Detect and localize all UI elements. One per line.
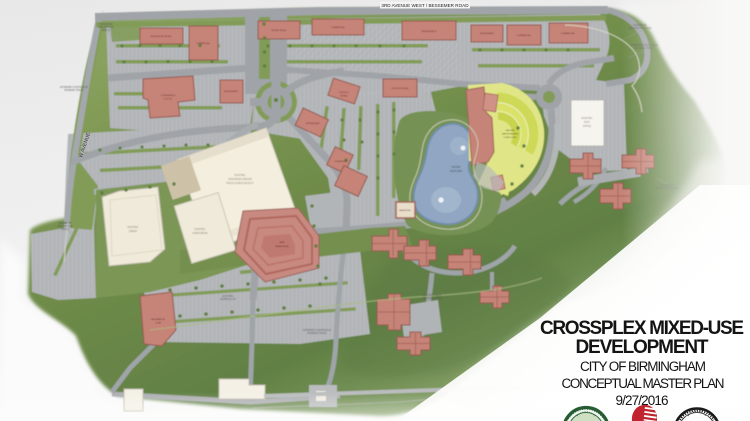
svg-text:FENCE: FENCE (61, 229, 69, 231)
svg-text:CONFERENCE: CONFERENCE (161, 95, 176, 97)
svg-text:EXTERIOR CONTINUOUS: EXTERIOR CONTINUOUS (303, 330, 331, 332)
svg-text:RETAIL: RETAIL (340, 95, 348, 98)
svg-text:ARENA: ARENA (129, 230, 137, 233)
svg-text:NATATORIUM: NATATORIUM (193, 232, 208, 235)
svg-text:WATER: WATER (451, 165, 460, 169)
svg-text:DEVELOPMENT: DEVELOPMENT (576, 337, 709, 358)
svg-text:COMMERCIAL: COMMERCIAL (196, 42, 211, 45)
svg-text:EXTERIOR CONTINUOUS: EXTERIOR CONTINUOUS (60, 87, 88, 89)
svg-text:OFFICE & RETAIL: OFFICE & RETAIL (391, 87, 409, 90)
svg-text:EXISTING: EXISTING (235, 175, 246, 177)
svg-text:EXISTING: EXISTING (128, 227, 139, 229)
svg-text:UAB MINI: UAB MINI (505, 129, 515, 132)
svg-text:RESIDENTIAL RETAIL: RESIDENTIAL RETAIL (150, 35, 172, 38)
svg-text:EXISTING: EXISTING (223, 296, 234, 298)
svg-text:PERIMETER: PERIMETER (99, 24, 113, 26)
svg-text:COMMERCIAL: COMMERCIAL (561, 32, 576, 35)
svg-text:DECORATIVE: DECORATIVE (99, 26, 114, 29)
svg-text:CROSSPLEX MIXED-USE: CROSSPLEX MIXED-USE (540, 318, 744, 339)
svg-text:TOWNHOMES: TOWNHOMES (334, 161, 349, 163)
svg-text:OFFICE &: OFFICE & (339, 92, 349, 94)
svg-text:TRACK & FIELD FACILITY: TRACK & FIELD FACILITY (226, 182, 254, 185)
svg-text:CLUB: CLUB (155, 323, 161, 325)
svg-text:WALKING TRACK: WALKING TRACK (423, 294, 442, 297)
svg-text:NEW: NEW (280, 242, 285, 244)
svg-text:OFFICE: OFFICE (583, 126, 592, 128)
svg-text:DECORATIVE: DECORATIVE (58, 225, 73, 228)
svg-text:AMENITIES: AMENITIES (399, 209, 411, 212)
svg-text:SURFACE LOT: SURFACE LOT (220, 298, 237, 301)
svg-text:CITY OF BIRMINGHAM: CITY OF BIRMINGHAM (580, 359, 706, 374)
svg-text:& HOTEL: & HOTEL (164, 99, 174, 101)
svg-text:RESTAURANT: RESTAURANT (224, 90, 239, 93)
svg-text:FEATURE: FEATURE (450, 169, 462, 173)
svg-text:NATATORIUM: NATATORIUM (275, 245, 289, 248)
svg-text:FENCE: FENCE (102, 30, 110, 32)
svg-text:RESTAURANTS: RESTAURANTS (421, 30, 437, 33)
svg-text:PERIMETER: PERIMETER (58, 223, 72, 225)
svg-text:AMPHITHEATER: AMPHITHEATER (502, 133, 519, 136)
svg-text:RETAIL RETAIL: RETAIL RETAIL (272, 29, 288, 32)
svg-text:CROSSPLEX INDOOR: CROSSPLEX INDOOR (228, 179, 252, 181)
svg-text:RESTAURANT: RESTAURANT (306, 122, 321, 125)
svg-text:COMMERCIAL: COMMERCIAL (517, 34, 532, 37)
svg-text:EXISTING: EXISTING (195, 229, 206, 231)
svg-text:& FACILITIES: & FACILITIES (504, 136, 518, 139)
svg-text:3RD AVENUE WEST / BESSEMER ROA: 3RD AVENUE WEST / BESSEMER ROAD (381, 3, 469, 8)
svg-text:RESTAURANT: RESTAURANT (480, 32, 495, 35)
svg-text:CONCEPTUAL MASTER PLAN: CONCEPTUAL MASTER PLAN (562, 376, 725, 391)
svg-text:RUNNING TRACK: RUNNING TRACK (64, 89, 84, 92)
svg-text:EXISTING: EXISTING (582, 118, 593, 120)
svg-text:POST: POST (584, 122, 591, 124)
svg-text:RUNNING TRACK: RUNNING TRACK (307, 332, 327, 335)
svg-text:COMMERCIAL: COMMERCIAL (331, 26, 346, 29)
svg-text:AROUND LAKES: AROUND LAKES (423, 297, 441, 300)
svg-text:RECREATION: RECREATION (151, 318, 165, 321)
